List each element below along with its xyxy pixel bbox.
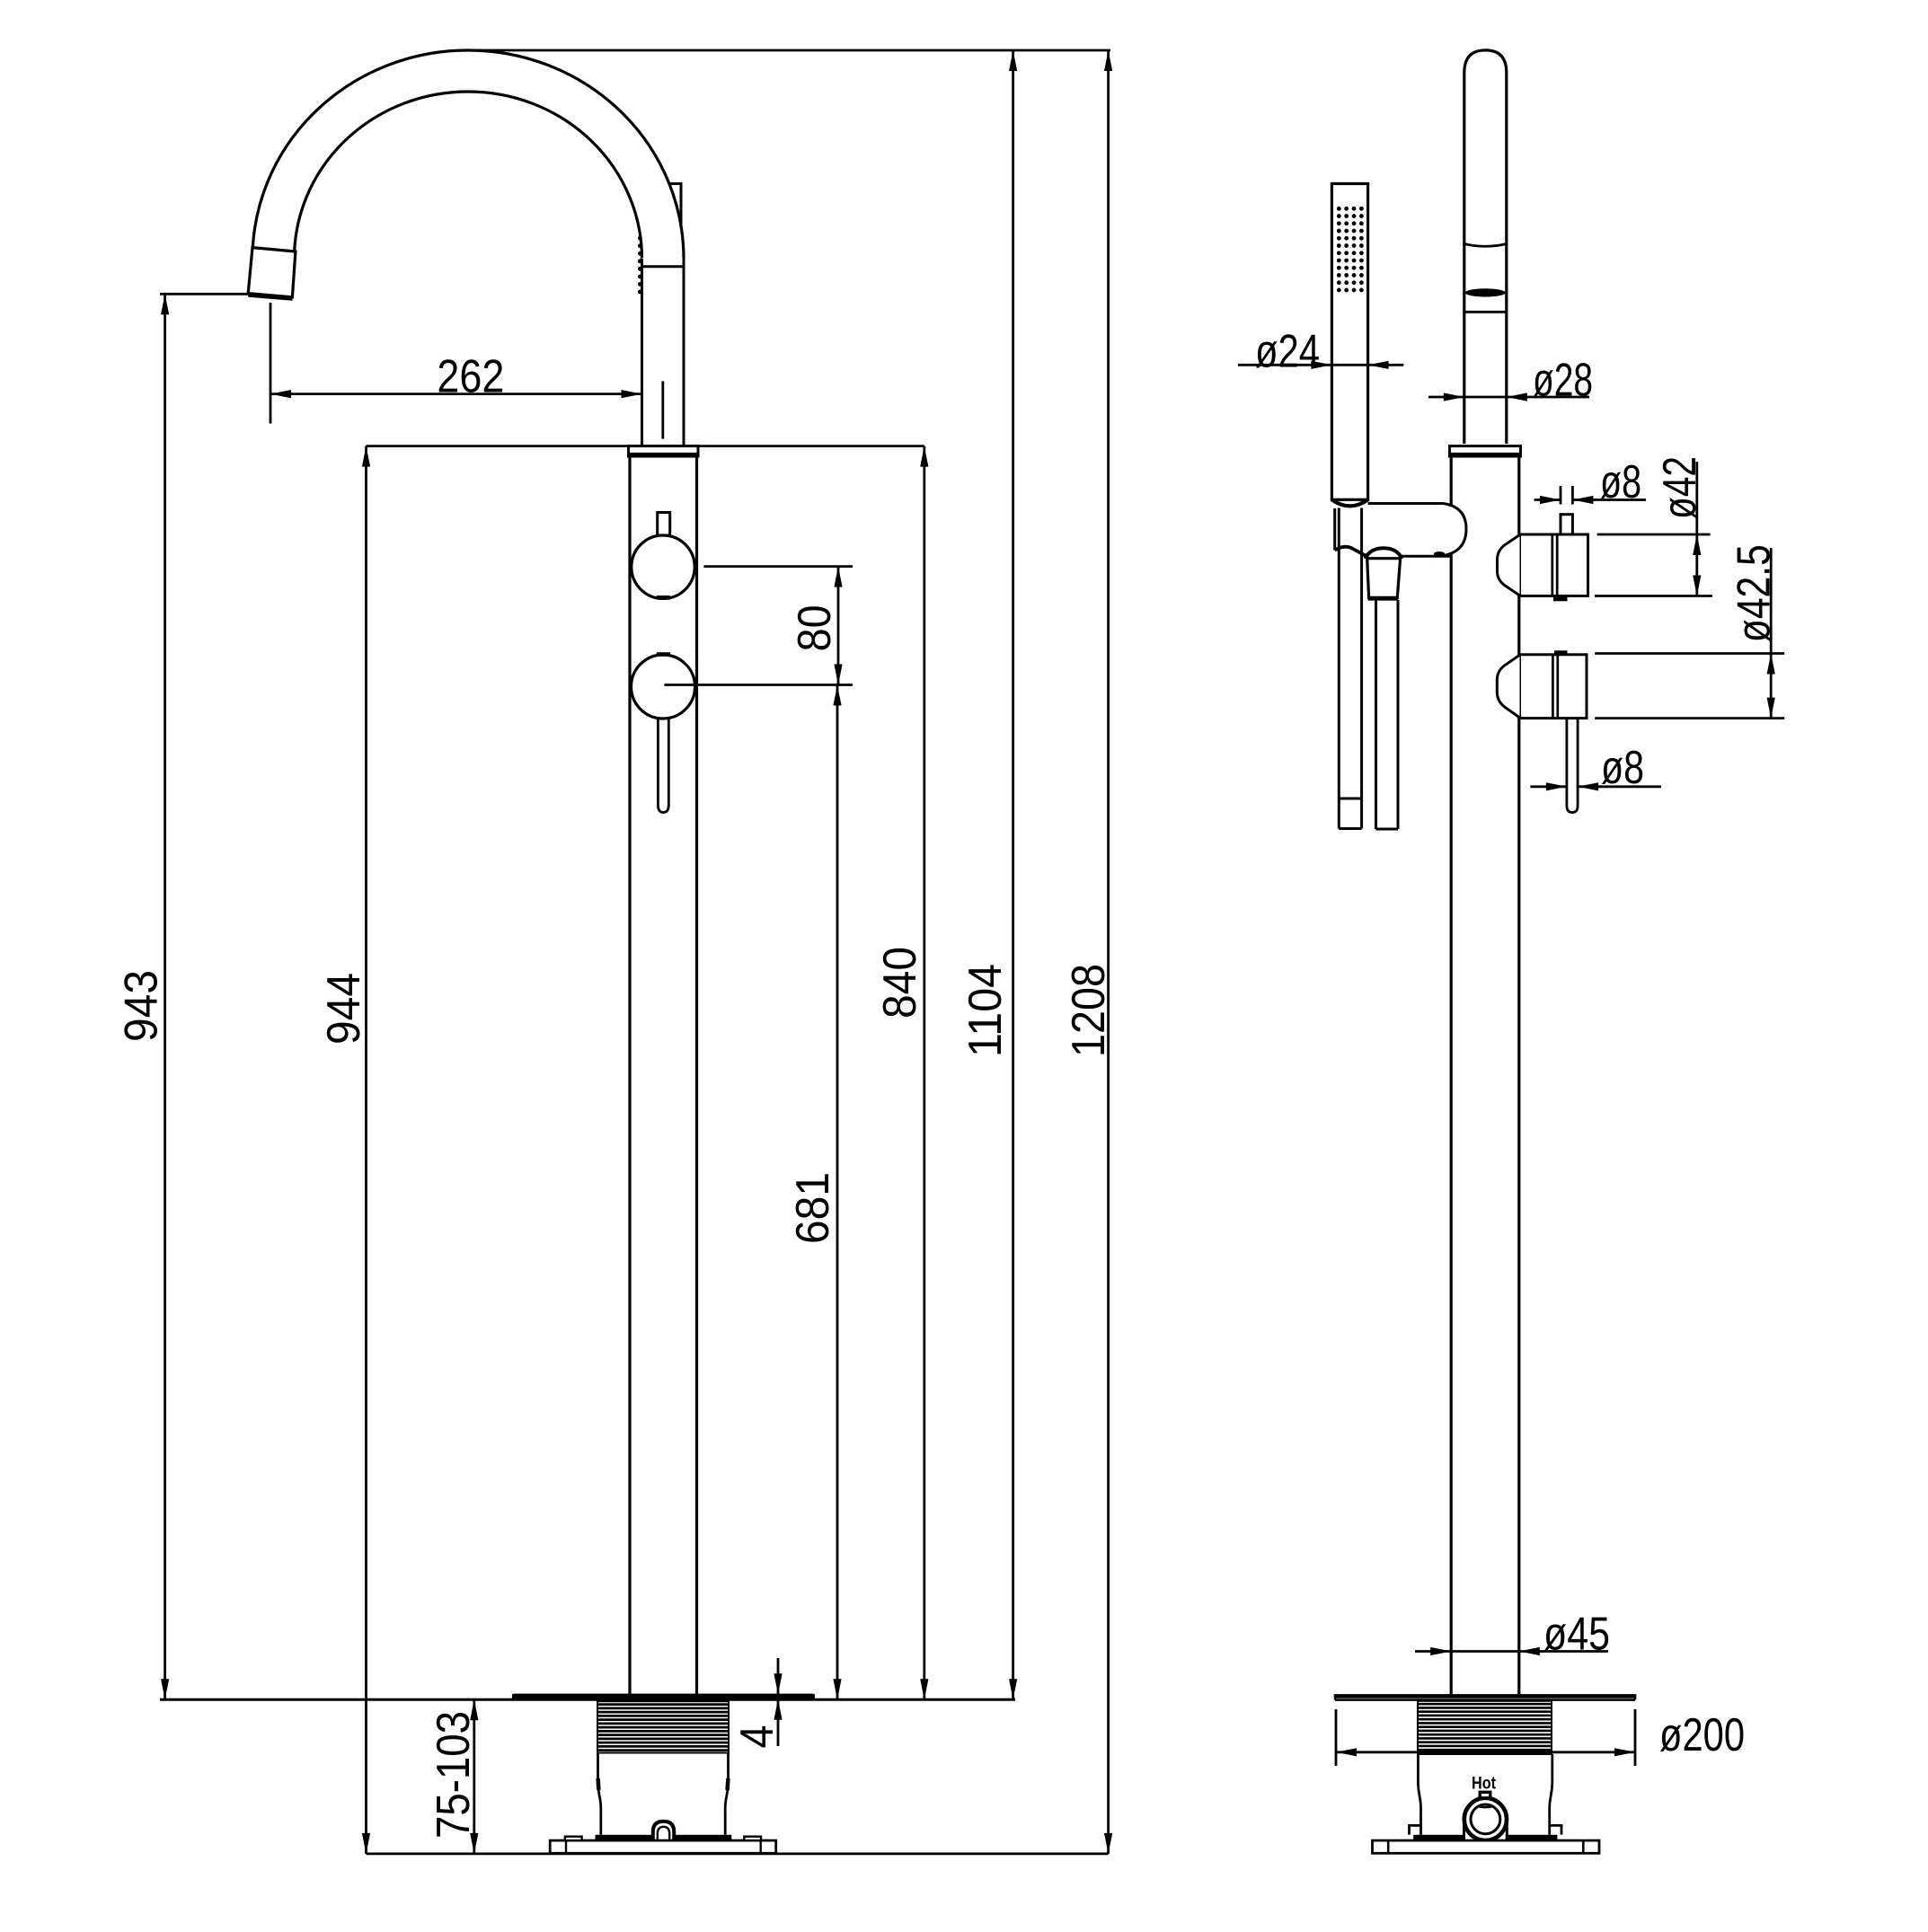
svg-text:ø45: ø45: [1543, 1609, 1610, 1661]
svg-text:ø8: ø8: [1601, 742, 1644, 794]
svg-text:681: 681: [787, 1172, 839, 1244]
svg-text:ø28: ø28: [1533, 355, 1593, 407]
svg-text:262: 262: [437, 351, 504, 403]
svg-text:75-103: 75-103: [428, 1711, 480, 1839]
svg-text:Hot: Hot: [1472, 1774, 1496, 1794]
svg-text:944: 944: [318, 973, 370, 1045]
svg-text:ø24: ø24: [1255, 326, 1320, 378]
svg-text:ø42: ø42: [1654, 456, 1706, 519]
svg-text:4: 4: [731, 1725, 783, 1749]
svg-text:1208: 1208: [1063, 964, 1115, 1057]
svg-text:840: 840: [874, 947, 926, 1019]
svg-text:ø200: ø200: [1659, 1709, 1745, 1761]
svg-text:943: 943: [116, 970, 168, 1042]
svg-text:ø42.5: ø42.5: [1729, 544, 1781, 642]
svg-text:80: 80: [789, 604, 841, 651]
svg-text:ø8: ø8: [1600, 456, 1641, 508]
svg-text:1104: 1104: [960, 964, 1012, 1057]
